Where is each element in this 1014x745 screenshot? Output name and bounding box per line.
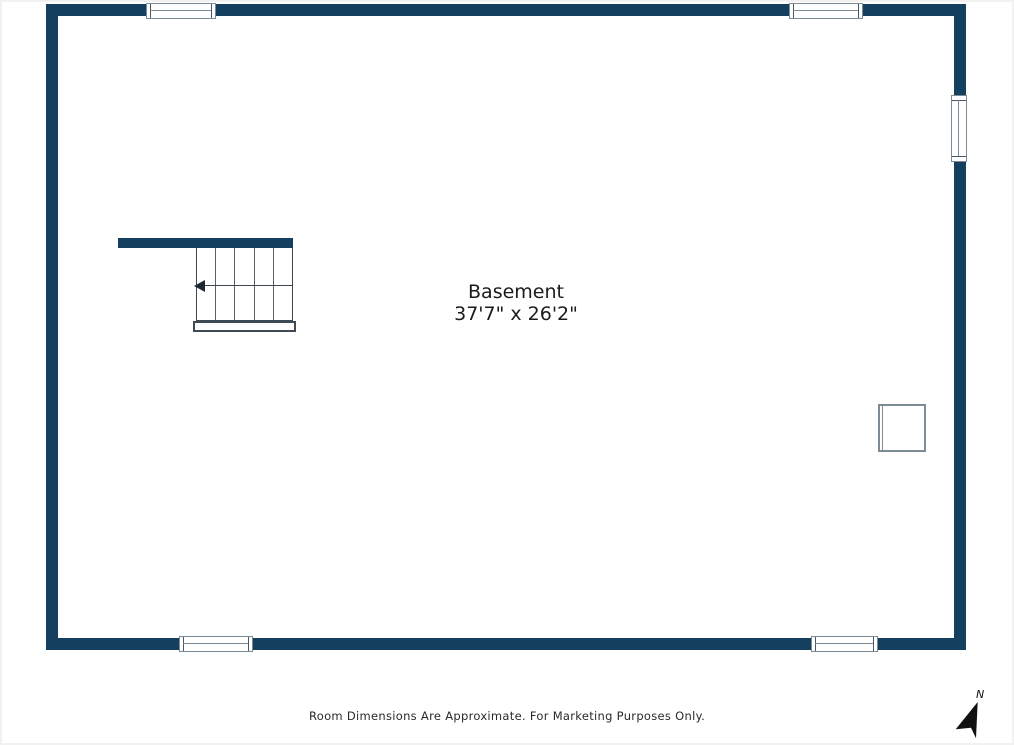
bottom-left-window <box>179 636 253 652</box>
window-cap <box>248 637 249 651</box>
utility-fixture-edge <box>882 406 883 450</box>
bottom-right-window <box>811 636 878 652</box>
disclaimer-text: Room Dimensions Are Approximate. For Mar… <box>0 709 1014 723</box>
window-glass-line <box>958 100 959 157</box>
window-cap <box>211 4 212 18</box>
window-glass-line <box>815 643 874 644</box>
north-arrow-icon: N <box>945 685 990 743</box>
room-dimensions: 37'7" x 26'2" <box>366 303 666 325</box>
exterior-walls <box>46 4 966 650</box>
window-glass-line <box>150 10 212 11</box>
window-cap <box>793 4 794 18</box>
window-glass-line <box>793 10 859 11</box>
stair-tread <box>216 248 235 320</box>
window-glass-line <box>183 643 249 644</box>
stair-tread <box>235 248 254 320</box>
interior-stair-wall <box>118 238 293 248</box>
window-cap <box>858 4 859 18</box>
room-label: Basement 37'7" x 26'2" <box>366 281 666 325</box>
compass-needle <box>956 702 978 738</box>
window-cap <box>150 4 151 18</box>
right-window <box>951 95 967 162</box>
window-cap <box>952 100 966 101</box>
stair-landing <box>193 321 296 332</box>
stair-tread <box>274 248 292 320</box>
top-right-window <box>789 3 863 19</box>
window-cap <box>815 637 816 651</box>
window-cap <box>952 156 966 157</box>
top-left-window <box>146 3 216 19</box>
utility-fixture <box>878 404 926 452</box>
stair-direction-line <box>196 285 293 286</box>
floorplan-canvas: Basement 37'7" x 26'2" Room Dimensions A… <box>0 0 1014 745</box>
stair-tread <box>255 248 274 320</box>
room-name: Basement <box>366 281 666 303</box>
window-cap <box>183 637 184 651</box>
window-cap <box>873 637 874 651</box>
compass-north-label: N <box>976 688 984 701</box>
stair-direction-arrow-icon <box>194 280 205 292</box>
